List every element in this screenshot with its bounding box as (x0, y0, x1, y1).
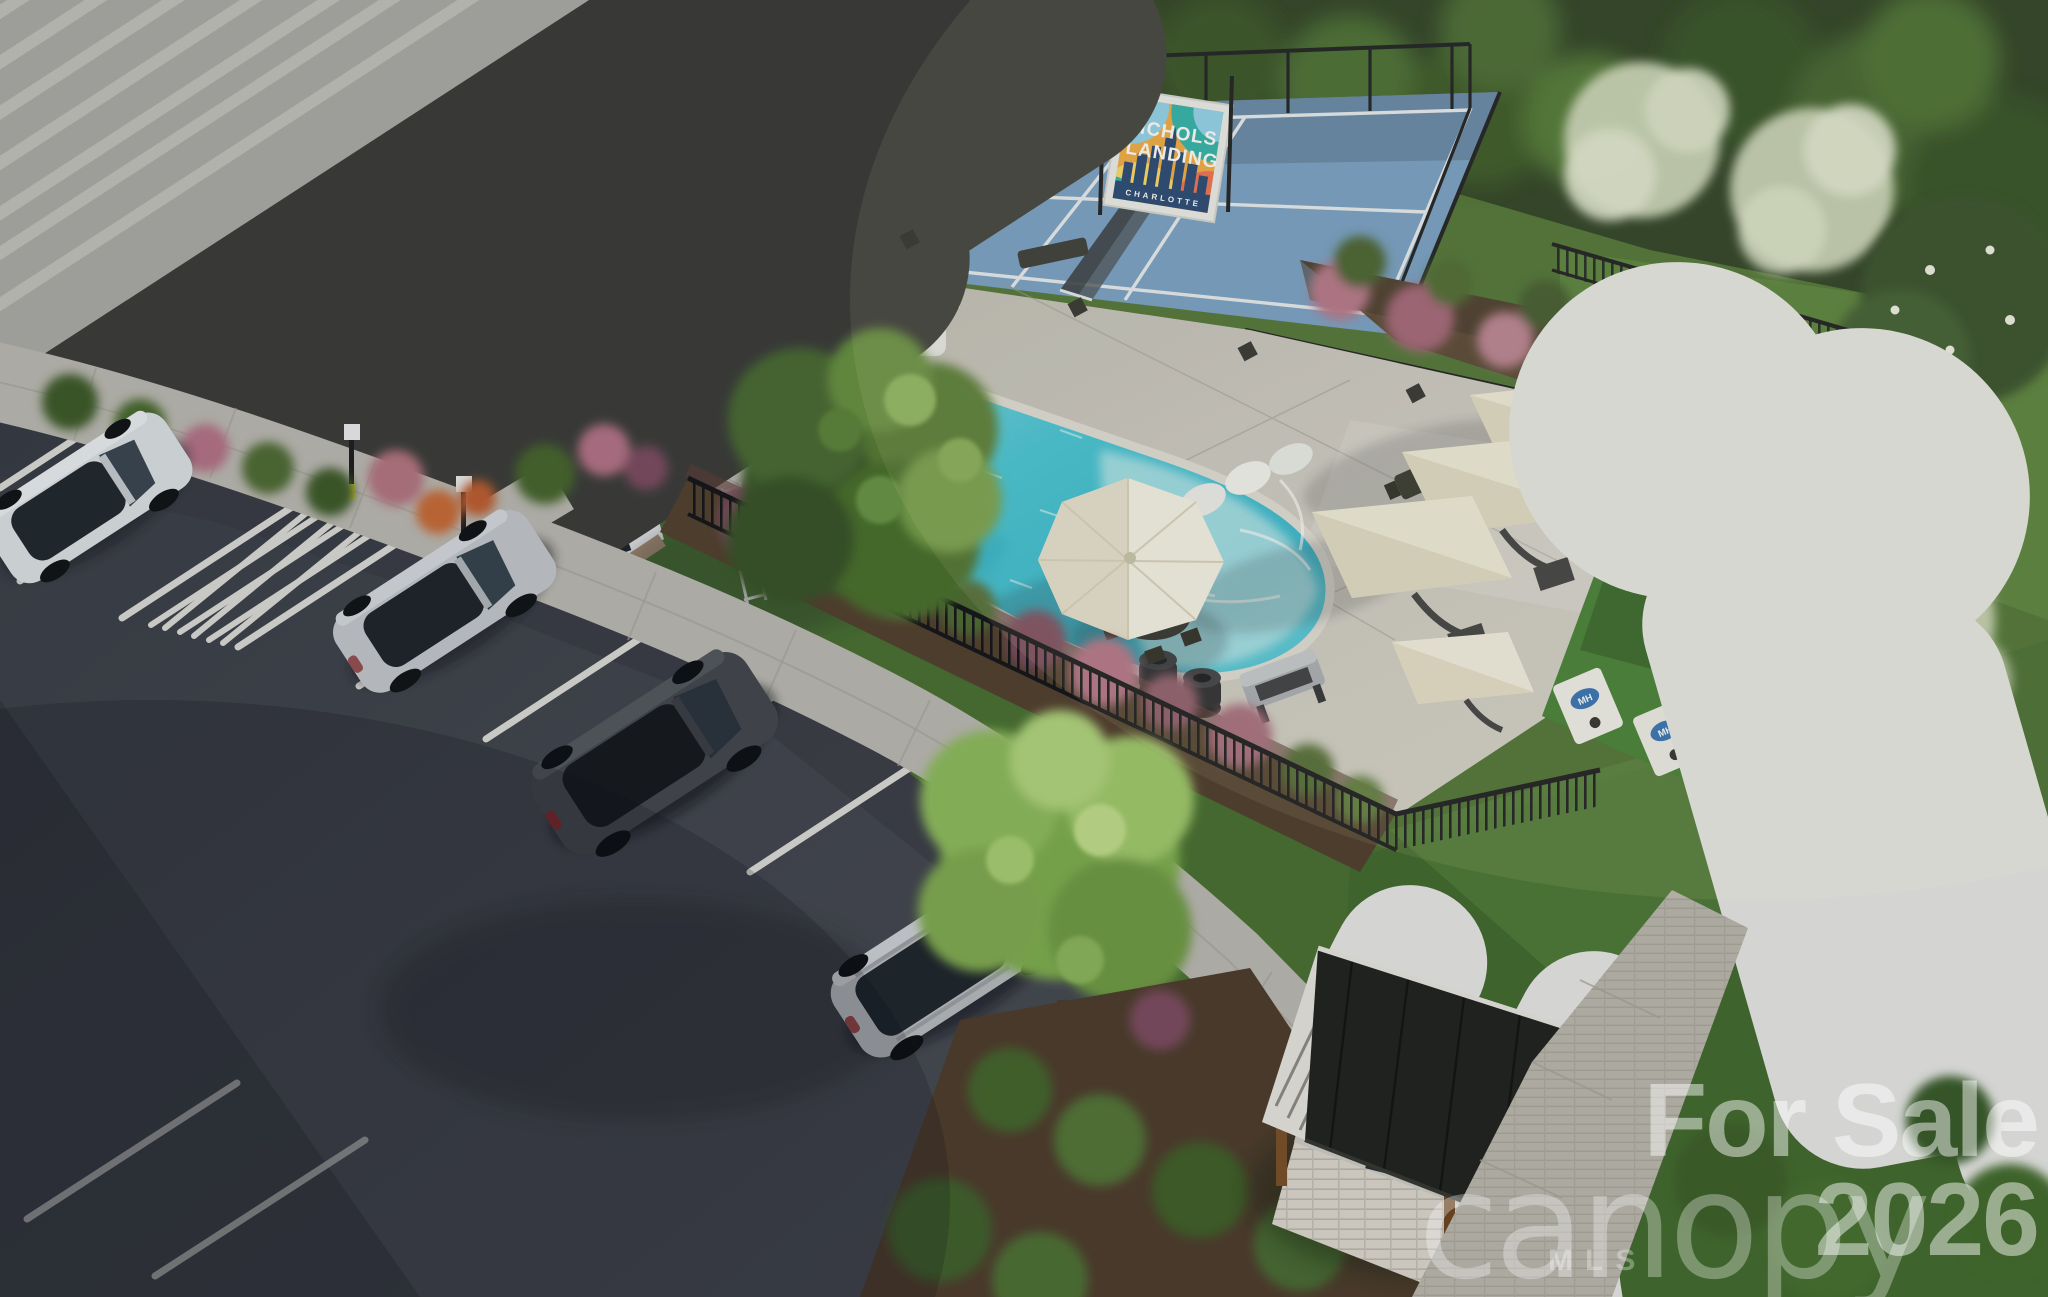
scene-art: NICHOLS LANDING CHARLOTTE (0, 0, 2048, 1297)
light-grade (0, 0, 2048, 1297)
aerial-community-rendering: NICHOLS LANDING CHARLOTTE (0, 0, 2048, 1297)
